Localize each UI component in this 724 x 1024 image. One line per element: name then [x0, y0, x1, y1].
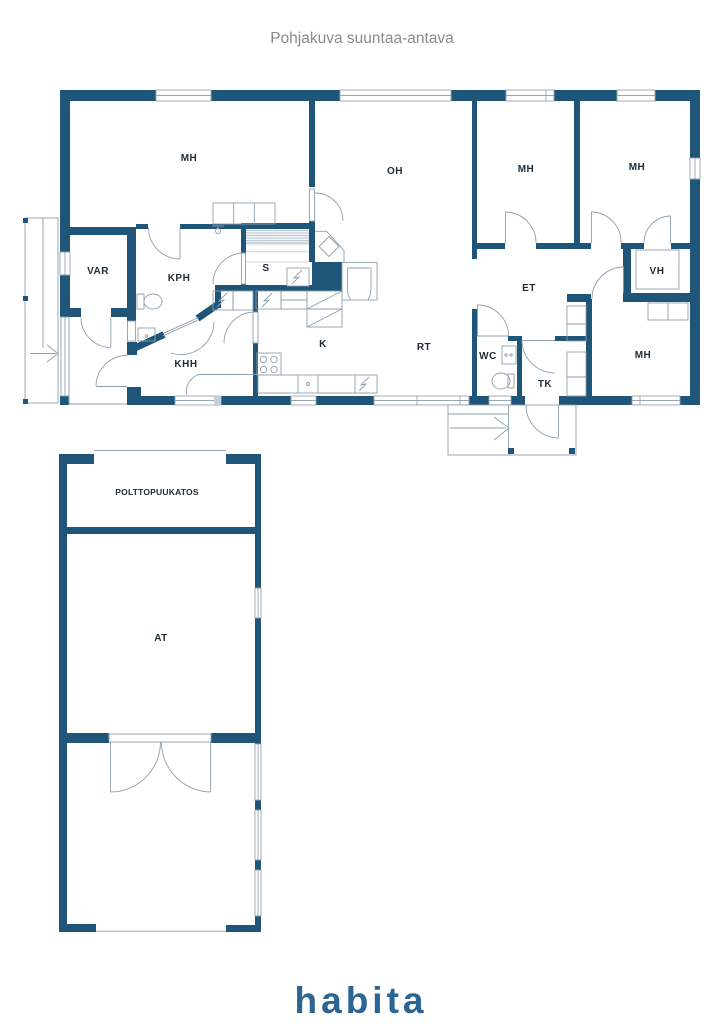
- svg-text:ET: ET: [522, 283, 536, 294]
- svg-text:POLTTOPUUKATOS: POLTTOPUUKATOS: [115, 487, 199, 497]
- svg-text:RT: RT: [417, 342, 431, 353]
- svg-text:VAR: VAR: [87, 266, 109, 277]
- svg-text:MH: MH: [518, 164, 535, 175]
- svg-text:OH: OH: [387, 166, 403, 177]
- svg-text:Pohjakuva suuntaa-antava: Pohjakuva suuntaa-antava: [270, 30, 454, 47]
- svg-text:VH: VH: [650, 266, 665, 277]
- svg-text:S: S: [262, 263, 269, 274]
- svg-text:KPH: KPH: [168, 273, 191, 284]
- svg-text:WC: WC: [479, 351, 497, 362]
- svg-text:habita: habita: [295, 980, 428, 1021]
- svg-text:MH: MH: [635, 350, 652, 361]
- svg-text:AT: AT: [154, 633, 168, 644]
- svg-text:TK: TK: [538, 379, 553, 390]
- svg-text:MH: MH: [629, 162, 646, 173]
- svg-text:KHH: KHH: [174, 359, 197, 370]
- svg-text:K: K: [319, 339, 327, 350]
- svg-text:MH: MH: [181, 153, 198, 164]
